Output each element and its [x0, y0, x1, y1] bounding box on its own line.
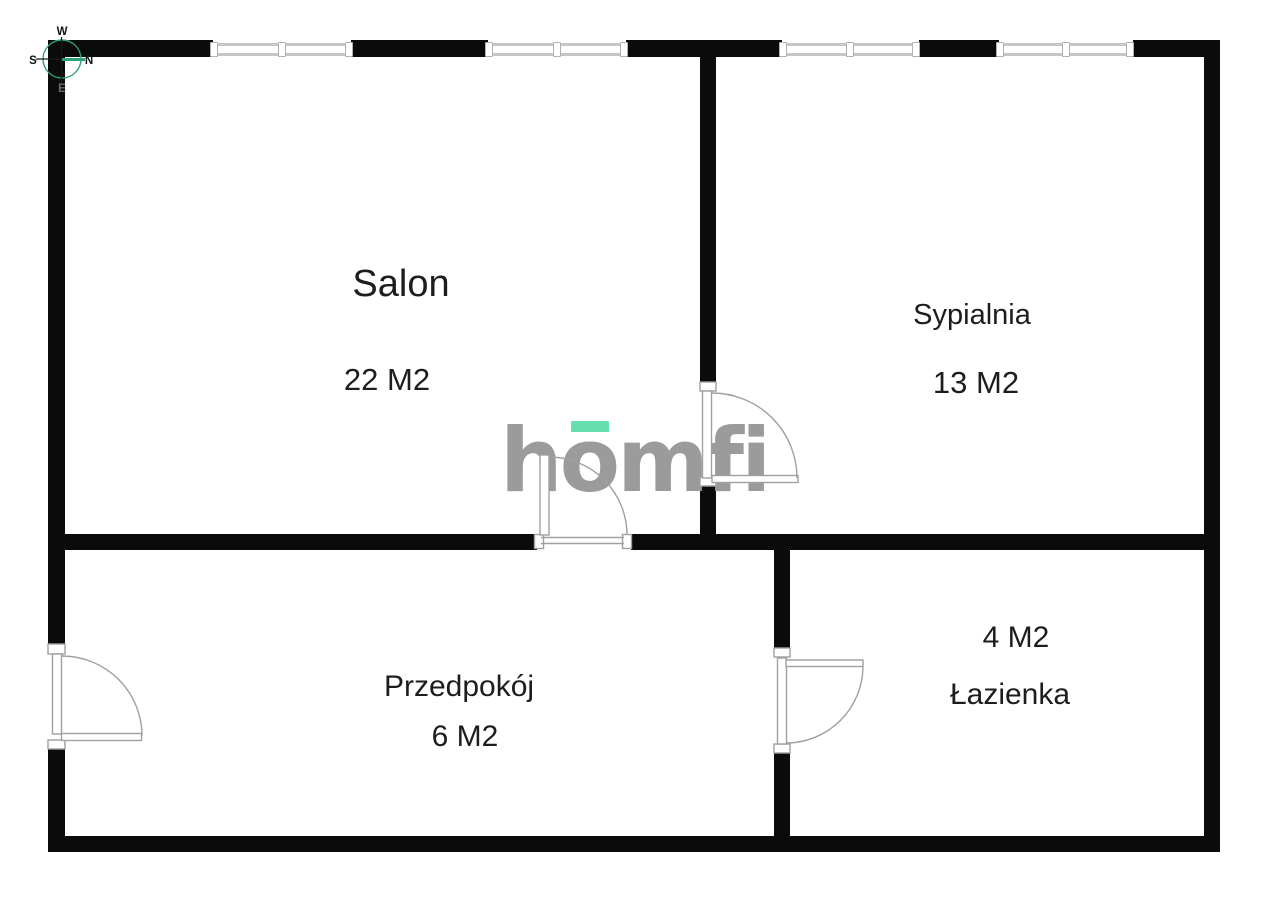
- door-salon-jamb-left: [535, 535, 544, 549]
- room-area-przedpokoj: 6 M2: [432, 720, 499, 754]
- doors-overlay: [0, 0, 1280, 915]
- door-sypialnia-leaf: [703, 391, 712, 478]
- floor-plan: homfi: [0, 0, 1280, 915]
- room-area-lazienka: 4 M2: [983, 621, 1050, 655]
- compass: W S N E: [0, 0, 130, 130]
- compass-label-north: N: [85, 55, 93, 67]
- door-salon-jamb-right: [623, 535, 632, 549]
- door-sypialnia-jamb-top: [700, 382, 716, 391]
- door-sypialnia: [700, 382, 798, 486]
- door-entrance-jamb-bottom: [48, 740, 65, 749]
- door-lazienka-swing-arc: [787, 666, 864, 743]
- door-lazienka-open-leaf: [786, 660, 863, 667]
- door-entrance: [48, 644, 142, 749]
- door-entrance-open-leaf: [62, 734, 142, 741]
- compass-label-south: S: [29, 55, 37, 67]
- room-label-przedpokoj: Przedpokój: [384, 670, 534, 704]
- door-lazienka-jamb-bottom: [774, 744, 790, 753]
- room-area-sypialnia: 13 M2: [933, 365, 1019, 401]
- room-label-lazienka: Łazienka: [950, 678, 1070, 712]
- door-entrance-jamb-top: [48, 644, 65, 654]
- door-salon: [535, 455, 632, 549]
- room-area-salon: 22 M2: [344, 362, 430, 398]
- door-entrance-swing-arc: [62, 656, 142, 736]
- compass-label-east: E: [58, 83, 66, 95]
- door-sypialnia-open-leaf: [712, 476, 798, 483]
- door-lazienka: [774, 648, 863, 753]
- door-entrance-leaf: [53, 654, 62, 734]
- door-salon-leaf: [540, 455, 549, 535]
- room-label-salon: Salon: [352, 263, 449, 306]
- door-lazienka-jamb-top: [774, 648, 790, 657]
- door-sypialnia-swing-arc: [712, 393, 797, 478]
- door-salon-swing-arc: [549, 457, 627, 535]
- room-label-sypialnia: Sypialnia: [913, 299, 1031, 332]
- compass-label-west: W: [57, 26, 68, 38]
- door-lazienka-leaf: [778, 658, 787, 744]
